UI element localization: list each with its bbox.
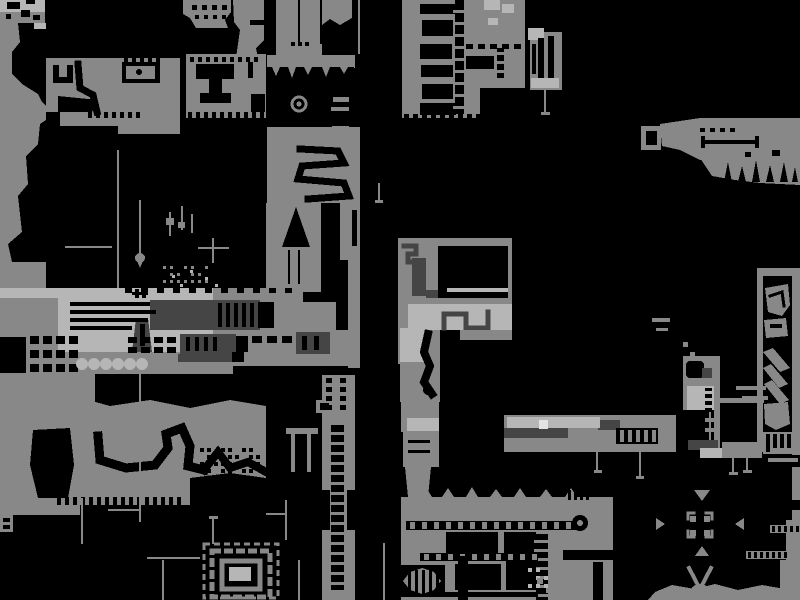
pole-drop <box>135 253 145 263</box>
scallop <box>88 358 100 370</box>
factory-slab <box>296 332 330 354</box>
left-strip-terrain <box>0 23 46 262</box>
corner-dash <box>6 14 11 19</box>
shaft-narrow <box>347 490 355 530</box>
gate-square <box>690 516 696 522</box>
boss-band <box>267 55 355 68</box>
cave-bar-end <box>701 136 705 148</box>
column-light-block <box>407 418 439 431</box>
t-pole-leg <box>291 434 295 472</box>
right-col-notch <box>792 500 800 510</box>
pole-box <box>166 218 174 225</box>
factory-stripe <box>70 318 148 322</box>
band-bump <box>490 489 502 497</box>
left-small-dash <box>3 518 10 522</box>
lobe-dots <box>291 42 309 46</box>
ne-structure-light-bottom <box>531 78 559 88</box>
maze-col-3 <box>403 431 439 467</box>
building-light-tile <box>502 4 514 13</box>
gate-triangle-up-icon <box>695 546 709 556</box>
left-notch <box>0 337 26 373</box>
lobe-c <box>322 0 352 25</box>
mid-mark <box>652 318 670 322</box>
grid-room <box>504 532 536 556</box>
concentric-core <box>229 567 251 581</box>
building-light-tile <box>488 18 498 25</box>
maze-light-line <box>447 288 508 292</box>
slab-end <box>258 302 274 328</box>
factory-stripe <box>70 310 156 314</box>
light-dot <box>205 277 208 280</box>
band-bump <box>442 488 454 497</box>
small-frame-inner <box>320 403 329 410</box>
slab-end <box>236 336 248 352</box>
light-dot <box>215 284 218 287</box>
frame-blob <box>686 361 704 378</box>
grid-channel <box>563 550 613 560</box>
bar-dark-row <box>504 428 568 438</box>
building-room <box>420 4 458 14</box>
gate-square <box>704 530 710 536</box>
left-block <box>0 262 46 292</box>
small-square <box>546 588 551 593</box>
anchor-ticks <box>190 57 258 62</box>
blob-notch <box>250 20 264 25</box>
ladder-mark <box>736 386 766 390</box>
slab-edge <box>232 352 244 362</box>
column-slit <box>352 210 357 246</box>
hub-room-wall <box>122 62 160 66</box>
shaft-narrow <box>322 490 330 530</box>
mid-mark <box>683 342 688 347</box>
mid-mark <box>690 352 695 357</box>
scallop <box>112 358 124 370</box>
pole-foot <box>729 472 738 475</box>
building-room <box>421 65 453 77</box>
tower-blob <box>764 402 790 430</box>
corner-tab <box>34 23 46 29</box>
band-bump <box>514 488 526 497</box>
t-pole-bar <box>286 428 318 434</box>
corner-dash <box>21 10 30 17</box>
bl-hole <box>30 428 74 498</box>
frame-ladder-rungs <box>703 391 714 408</box>
factory-stripe <box>70 326 132 330</box>
boss-mark <box>333 97 349 102</box>
pole-foot <box>541 112 550 115</box>
hub-tail <box>118 126 180 134</box>
column-mark <box>408 450 430 453</box>
hub-room-wall <box>122 62 126 83</box>
ne-pillar <box>532 44 536 74</box>
top-blob-b <box>233 0 264 58</box>
building-light-tile <box>484 0 500 10</box>
cave-notch <box>745 152 751 157</box>
shaft-rungs <box>453 10 465 109</box>
building-room <box>422 20 453 36</box>
light-shelf <box>0 288 58 298</box>
tower-top-light <box>700 448 722 458</box>
bar-light-row <box>507 417 600 428</box>
light-dot <box>196 288 199 291</box>
debris-dots <box>163 266 208 283</box>
building-ticks <box>404 114 481 118</box>
hub-room-wall <box>122 79 160 83</box>
maze-light-band <box>408 304 512 330</box>
maze-figure-dot <box>423 385 433 395</box>
gate-square <box>690 530 696 536</box>
left-small-dash <box>3 525 10 529</box>
corner-dash <box>26 0 35 4</box>
building-room <box>420 44 452 59</box>
anchor-side <box>248 62 253 78</box>
shaft-inner <box>331 425 344 590</box>
gate-square <box>704 516 710 522</box>
hub-room-dot <box>136 69 142 75</box>
corner-dash <box>33 15 40 20</box>
pole-box <box>178 222 185 228</box>
building-room <box>420 103 456 115</box>
bottom-right-terrain <box>648 584 800 600</box>
boss-mark <box>332 126 349 130</box>
pole-foot <box>209 516 218 519</box>
t-pole-leg <box>307 434 311 472</box>
tower-blob-slit <box>770 324 782 328</box>
frame-dark-step <box>702 368 712 378</box>
anchor-shape <box>196 64 234 79</box>
column-mark <box>408 440 430 443</box>
ladder-mark <box>742 396 768 400</box>
ladder-mark <box>772 448 798 452</box>
world-map-canvas <box>0 0 800 600</box>
tower-left-frame <box>757 268 763 450</box>
anchor-shape <box>200 93 231 103</box>
ring-icon-center <box>297 102 302 107</box>
maze-bottom-ledge <box>460 330 512 340</box>
factory-dark-band <box>178 354 232 362</box>
light-dot <box>180 284 183 287</box>
tower-blob <box>765 284 790 316</box>
small-square <box>537 578 543 584</box>
building-room <box>466 56 494 69</box>
donut-center <box>577 520 583 526</box>
top-blob-a <box>183 0 231 28</box>
tower-slit <box>140 324 145 346</box>
scallop <box>124 358 136 370</box>
ne-pillar <box>538 38 544 80</box>
grid-channel <box>593 562 603 600</box>
pole-foot <box>743 470 752 473</box>
gate-triangle-left-icon <box>735 518 744 530</box>
boss-mark <box>331 107 349 111</box>
mid-mark <box>656 328 668 331</box>
anchor-shape <box>209 79 222 93</box>
pole-foot <box>636 476 644 479</box>
pole-foot <box>375 200 383 203</box>
game-map <box>0 0 800 600</box>
corner-dash <box>7 2 20 9</box>
factory-windows <box>252 336 292 343</box>
scallop <box>100 358 112 370</box>
gate-triangle-right-icon <box>656 518 665 530</box>
building-room <box>422 84 453 99</box>
grid-hrow-ticks <box>410 522 583 529</box>
hub-room-wall <box>155 62 160 83</box>
bar-white-square <box>539 420 548 429</box>
ne-pillar <box>548 36 554 80</box>
tower-top-gray <box>722 442 762 458</box>
anchor-side <box>251 94 265 112</box>
cave-bar-end <box>755 136 759 148</box>
band-bump <box>466 487 478 497</box>
light-dot <box>190 270 193 273</box>
left-small-block <box>0 515 13 532</box>
factory-stripe <box>70 302 150 306</box>
hash-mark <box>132 292 148 295</box>
pole-foot <box>594 470 602 473</box>
cave-bar <box>703 140 757 144</box>
scallop <box>76 358 88 370</box>
maze-vbar <box>412 258 426 296</box>
scallop <box>136 358 148 370</box>
band-bump <box>540 489 552 497</box>
cave-notch <box>772 150 780 156</box>
ladder-mark <box>768 458 798 462</box>
boss-mark <box>339 133 351 136</box>
cave-bracket-inner <box>646 131 657 145</box>
gate-triangle-down-icon <box>694 490 710 501</box>
